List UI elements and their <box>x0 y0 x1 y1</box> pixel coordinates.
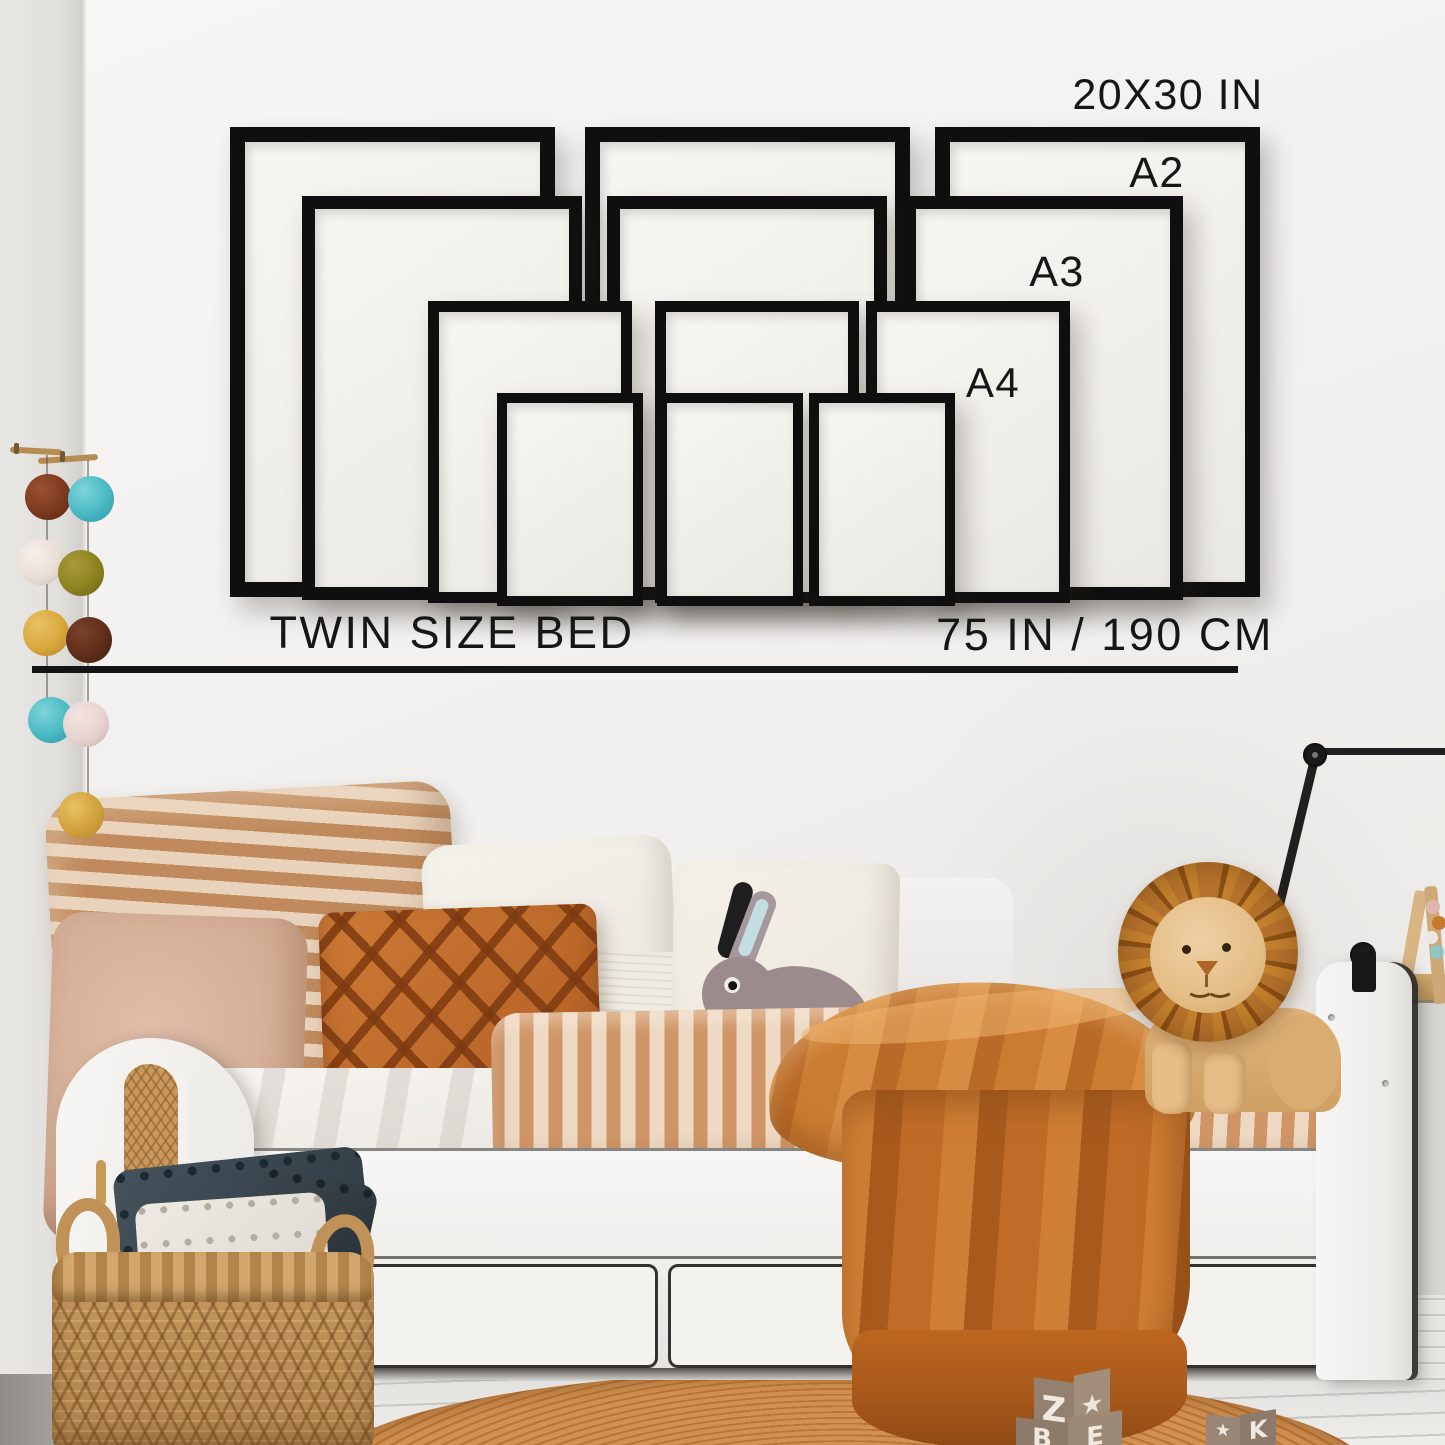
pom-pom-dark-brown <box>66 617 112 663</box>
bed-width-measure-line <box>32 666 1238 673</box>
abacus-bead-white <box>1425 931 1438 944</box>
block-letter: E <box>1086 1421 1104 1445</box>
pom-pom-mustard <box>58 792 104 838</box>
abacus-bead-orange <box>1432 916 1445 930</box>
star-glyph: ★ <box>1215 1419 1231 1442</box>
garland-nail <box>60 451 65 462</box>
block-face-star: ★ <box>1206 1414 1240 1445</box>
block-letter: B <box>1032 1423 1052 1445</box>
block-face-letter: B <box>1016 1417 1068 1445</box>
mattress-edge-line <box>92 1148 1414 1151</box>
lion-plush-front-leg <box>1204 1052 1246 1114</box>
pom-pom-olive <box>58 550 104 596</box>
size-guide-mockup: Z ★ B E ★ K 20X30 IN A2 A3 A4 TWIN SIZE … <box>0 0 1445 1445</box>
size-label-20x30: 20X30 IN <box>1072 74 1263 117</box>
abacus-bead-teal <box>1430 945 1444 959</box>
rabbit-eye <box>728 981 737 990</box>
size-label-a3: A3 <box>1029 251 1085 294</box>
basket-rim <box>52 1252 374 1302</box>
pom-pom-brown <box>25 474 71 520</box>
garland-nail <box>14 443 19 454</box>
lion-plush-face <box>1150 897 1266 1013</box>
size-label-a4: A4 <box>966 362 1020 404</box>
size-label-a2: A2 <box>1129 152 1185 195</box>
lion-eye <box>1222 943 1231 952</box>
lion-nose <box>1196 961 1218 976</box>
alphabet-block-be: B E <box>1016 1414 1122 1445</box>
lamp-clamp <box>1352 952 1376 992</box>
frame-a4-left <box>497 393 643 606</box>
block-face-letter: K <box>1240 1409 1276 1445</box>
frame-a4-right <box>809 393 955 606</box>
bed-size-label: TWIN SIZE BED <box>269 610 634 655</box>
frame-a4-middle <box>657 393 803 606</box>
pom-pom-cream <box>18 539 64 585</box>
bed-width-label: 75 IN / 190 CM <box>936 612 1274 657</box>
pom-pom-pink <box>63 701 109 747</box>
daybed-footboard <box>1316 962 1412 1380</box>
block-face-letter: E <box>1068 1410 1122 1445</box>
abacus-bead-pink <box>1426 900 1440 914</box>
pom-pom-teal <box>68 476 114 522</box>
lamp-arm-horizontal <box>1316 748 1445 755</box>
pom-pom-mustard <box>23 610 69 656</box>
lion-plush-front-leg <box>1152 1040 1192 1114</box>
footboard-screw <box>1382 1080 1389 1087</box>
footboard-screw <box>1328 1014 1335 1021</box>
lamp-joint-top <box>1303 743 1327 767</box>
lion-eye <box>1182 945 1191 954</box>
lion-plush-haunch <box>1268 1014 1340 1110</box>
lion-mouth <box>1206 979 1234 998</box>
block-letter: K <box>1249 1415 1268 1445</box>
rattan-basket <box>52 1252 374 1445</box>
alphabet-block-k: ★ K <box>1206 1412 1276 1445</box>
